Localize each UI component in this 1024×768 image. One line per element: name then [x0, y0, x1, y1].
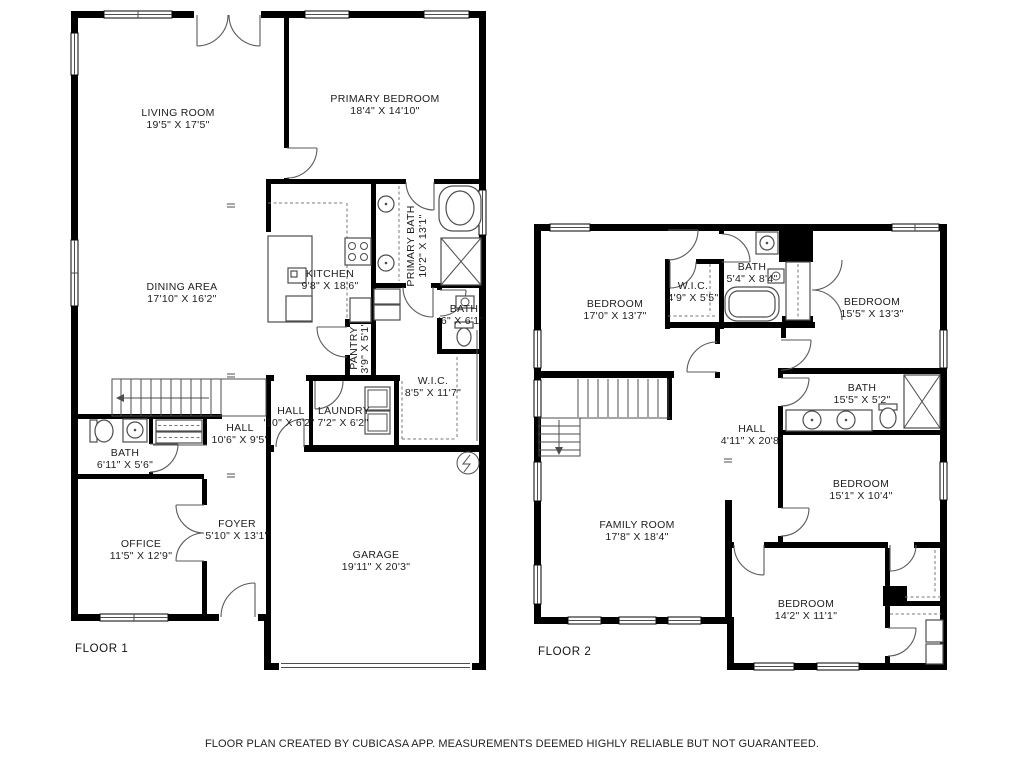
floor2-opening-marks [724, 459, 732, 462]
floor1-title: FLOOR 1 [75, 643, 128, 655]
hall-small-label: HALL [277, 405, 304, 417]
living-room-label: LIVING ROOM [141, 107, 214, 119]
wic2-label: W.I.C. [678, 280, 708, 292]
floor2-plan: BEDROOM 17'0" X 13'7" W.I.C. 4'9" X 5'5"… [534, 224, 947, 670]
foyer-label: FOYER [218, 518, 256, 530]
bedroom-mid-label: BEDROOM [833, 478, 889, 490]
electric-meter-icon [457, 452, 479, 474]
bedroom-bottom-dims: 14'2" X 11'1" [775, 610, 837, 622]
left-bath-dims: 6'11" X 5'6" [97, 459, 153, 471]
kitchen-label: KITCHEN [306, 268, 354, 280]
floor-plan-drawing: LIVING ROOM 19'5" X 17'5" PRIMARY BEDROO… [0, 0, 1024, 768]
floor2-bedroom-tr-closet [786, 262, 810, 320]
floor1-plan: LIVING ROOM 19'5" X 17'5" PRIMARY BEDROO… [71, 10, 486, 671]
dining-area-dims: 17'10" X 16'2" [147, 293, 216, 305]
garage-label: GARAGE [353, 549, 400, 561]
wic-label: W.I.C. [418, 375, 448, 387]
garage-door [279, 661, 472, 671]
pantry-dims: 3'9" X 5'1" [359, 323, 371, 374]
hall-closet-shelves [153, 420, 207, 445]
bedroom-tr-dims: 15'5" X 13'3" [840, 308, 903, 320]
bedroom-bottom-label: BEDROOM [778, 598, 834, 610]
floor2-closets [890, 550, 943, 664]
hall2-dims: 4'11" X 20'8" [721, 435, 783, 447]
front-door-opening [219, 613, 258, 622]
hall-dims: 10'6" X 9'5" [211, 434, 268, 446]
floor2-stairs [539, 379, 670, 456]
floor1-stairs [112, 379, 266, 416]
family-room-label: FAMILY ROOM [599, 519, 674, 531]
floor1-left-bath-fixtures [90, 419, 147, 442]
left-bath-label: BATH [111, 447, 139, 459]
hall2-label: HALL [738, 423, 765, 435]
stove-icon [345, 238, 371, 265]
bath-mid-dims: 15'5" X 5'2" [833, 394, 890, 406]
small-bath-label: BATH [450, 303, 478, 315]
garage-dims: 19'11" X 20'3" [342, 561, 411, 573]
living-room-dims: 19'5" X 17'5" [146, 119, 209, 131]
primary-bath-dims: 10'2" X 13'1" [417, 214, 429, 277]
dining-area-label: DINING AREA [147, 281, 218, 293]
primary-bath-label: PRIMARY BATH [405, 205, 417, 286]
primary-bedroom-label: PRIMARY BEDROOM [330, 93, 439, 105]
small-bath-dims: '6" X 6'1" [439, 315, 484, 327]
fridge-icon [350, 298, 371, 322]
bath-mid-label: BATH [848, 382, 876, 394]
bath-top-dims: 5'4" X 8'4" [727, 273, 778, 285]
hall-label: HALL [226, 422, 253, 434]
footer-disclaimer: FLOOR PLAN CREATED BY CUBICASA APP. MEAS… [205, 738, 819, 750]
office-label: OFFICE [121, 538, 161, 550]
bath-top-label: BATH [738, 261, 766, 273]
foyer-dims: 5'10" X 13'1" [205, 530, 268, 542]
bedroom-tl-dims: 17'0" X 13'7" [583, 310, 646, 322]
bedroom-tl-label: BEDROOM [587, 298, 643, 310]
floor2-title: FLOOR 2 [538, 646, 591, 658]
wic2-dims: 4'9" X 5'5" [668, 292, 719, 304]
bedroom-tr-label: BEDROOM [844, 296, 900, 308]
hall-small-dims: '10" X 6'2" [264, 417, 315, 429]
family-room-dims: 17'8" X 18'4" [605, 531, 668, 543]
wic-dims: 8'5" X 11'7" [405, 387, 461, 399]
floor-plan-canvas: LIVING ROOM 19'5" X 17'5" PRIMARY BEDROO… [0, 0, 1024, 768]
primary-bedroom-dims: 18'4" X 14'10" [350, 105, 419, 117]
office-dims: 11'5" X 12'9" [110, 550, 172, 562]
kitchen-dims: 9'8" X 18'6" [301, 280, 358, 292]
floor1-room-labels: LIVING ROOM 19'5" X 17'5" PRIMARY BEDROO… [97, 93, 484, 573]
laundry-dims: 7'2" X 6'2" [318, 417, 369, 429]
floor1-exterior-walls [71, 11, 486, 670]
laundry-label: LAUNDRY [318, 405, 370, 417]
bedroom-mid-dims: 15'1" X 10'4" [829, 490, 892, 502]
